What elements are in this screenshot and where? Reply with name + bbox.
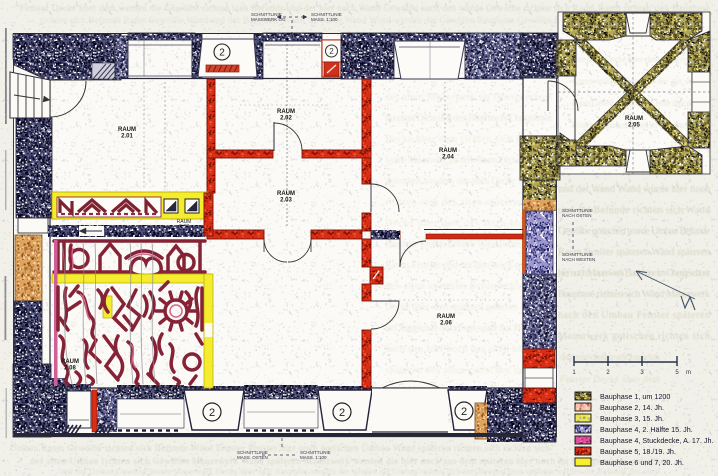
- svg-text:2.03: 2.03: [280, 198, 292, 204]
- svg-text:Bauphase 4, 2. Hälfte 15. Jh.: Bauphase 4, 2. Hälfte 15. Jh.: [600, 425, 693, 434]
- svg-text:MASS. 1:100: MASS. 1:100: [300, 455, 327, 460]
- svg-text:MASS. 1:100: MASS. 1:100: [311, 17, 338, 22]
- svg-text:NACH OSTEN: NACH OSTEN: [562, 213, 592, 218]
- svg-text:2.08: 2.08: [64, 366, 76, 372]
- svg-text:RAUM: RAUM: [625, 116, 643, 122]
- svg-text:MASS. OSTEN: MASS. OSTEN: [237, 455, 268, 460]
- svg-text:RAUM: RAUM: [439, 148, 457, 154]
- svg-text:2.06: 2.06: [440, 321, 452, 327]
- svg-text:Bauphase 6 und 7, 20. Jh.: Bauphase 6 und 7, 20. Jh.: [600, 458, 684, 467]
- svg-text:RAUM: RAUM: [277, 191, 295, 197]
- svg-text:RAUM: RAUM: [277, 109, 295, 115]
- svg-text:2: 2: [329, 47, 334, 56]
- svg-text:Bauphase 2, 14. Jh.: Bauphase 2, 14. Jh.: [600, 403, 664, 412]
- svg-text:RAUM: RAUM: [437, 314, 455, 320]
- svg-text:RAUM: RAUM: [118, 127, 136, 133]
- svg-text:2: 2: [209, 407, 215, 419]
- svg-text:Bauphase 1, um 1200: Bauphase 1, um 1200: [600, 392, 670, 401]
- svg-text:2: 2: [339, 407, 345, 419]
- svg-text:2.01: 2.01: [121, 134, 133, 140]
- svg-text:2: 2: [461, 406, 467, 418]
- svg-text:Bauphase 5, 18./19. Jh.: Bauphase 5, 18./19. Jh.: [600, 447, 676, 456]
- svg-text:Bauphase 4, Stuckdecke, A. 17.: Bauphase 4, Stuckdecke, A. 17. Jh.: [600, 436, 713, 445]
- svg-text:2.04: 2.04: [442, 155, 454, 161]
- svg-text:2.05: 2.05: [628, 123, 640, 129]
- svg-text:2.02: 2.02: [280, 116, 292, 122]
- svg-text:NACH WESTEN: NACH WESTEN: [562, 257, 595, 262]
- svg-text:RAUM: RAUM: [61, 359, 79, 365]
- svg-text:m: m: [686, 370, 691, 376]
- svg-text:Bauphase 3, 15. Jh.: Bauphase 3, 15. Jh.: [600, 414, 664, 423]
- svg-text:2: 2: [219, 48, 225, 59]
